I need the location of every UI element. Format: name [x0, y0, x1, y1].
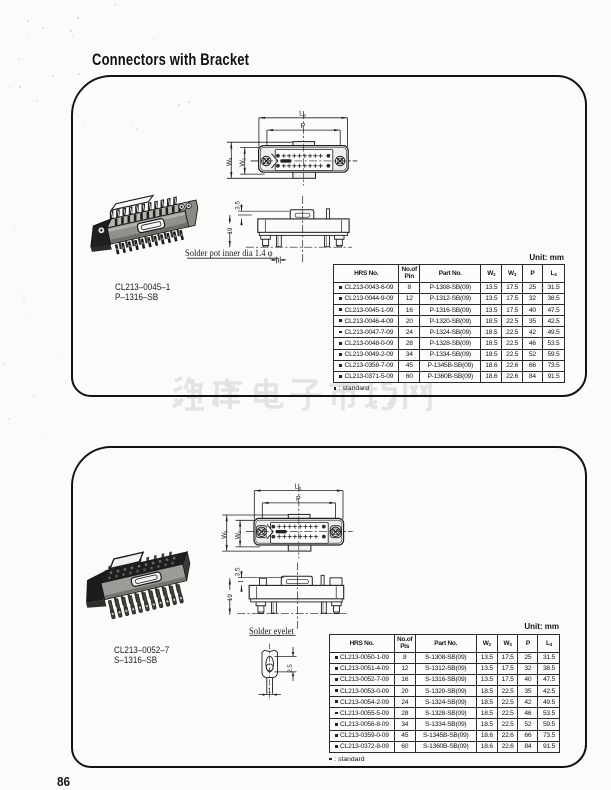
svg-text:3.5: 3.5 — [234, 201, 241, 210]
svg-text:3: 3 — [228, 157, 233, 160]
svg-text:2.5: 2.5 — [287, 664, 294, 673]
svg-text:3: 3 — [224, 530, 229, 533]
svg-text:19: 19 — [227, 227, 234, 235]
svg-text:1: 1 — [268, 688, 272, 694]
svg-text:3.5: 3.5 — [234, 567, 241, 576]
svg-text:19: 19 — [227, 594, 234, 602]
svg-text:2: 2 — [242, 158, 247, 161]
svg-text:2: 2 — [237, 531, 242, 534]
